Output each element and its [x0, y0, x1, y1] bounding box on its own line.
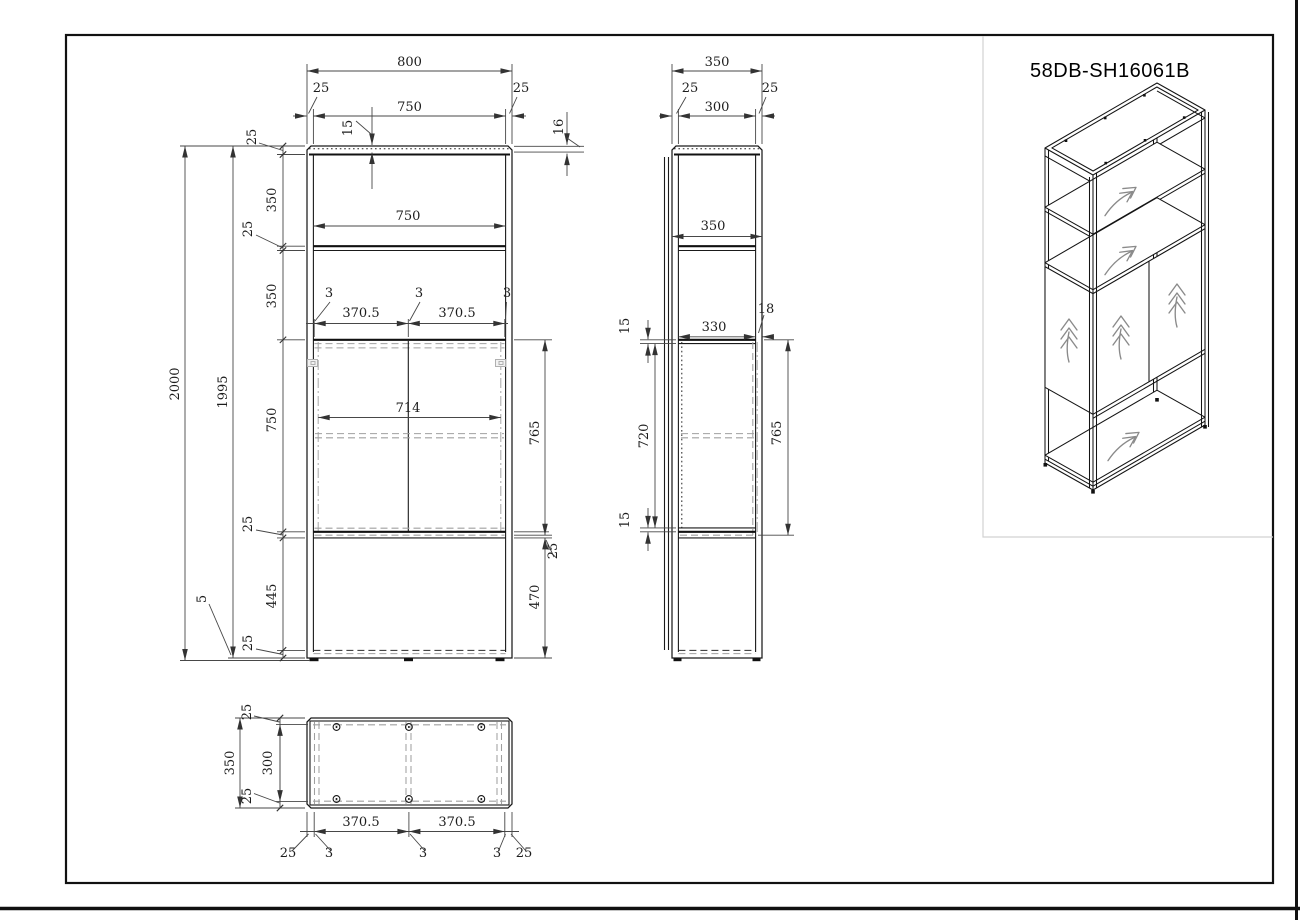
- dim-corner-inset-left: 25: [313, 81, 330, 96]
- dim-inner-width: 750: [397, 100, 422, 115]
- dim-overall-height: 2000: [168, 367, 183, 400]
- dim-door-width-left: 370.5: [342, 306, 379, 321]
- dim-corner-inset-right: 25: [513, 81, 530, 96]
- dim-top-inner-depth: 300: [261, 751, 276, 776]
- dim-corner-inset-front: 25: [682, 81, 699, 96]
- dim-chain-4: 750: [265, 408, 280, 433]
- dim-chain-0: 25: [245, 129, 260, 146]
- foot-center: [404, 658, 413, 661]
- front-view: 800 750 25 25 15 16 750 25 350 25 350 75…: [168, 55, 584, 661]
- dim-door-height: 765: [528, 421, 543, 446]
- dim-top-lip-side: 15: [618, 318, 633, 335]
- dim-chain-3: 350: [265, 284, 280, 309]
- dim-door-thickness: 18: [758, 302, 775, 317]
- dim-door-gap-left: 3: [325, 286, 333, 301]
- dim-corner-inset-back: 25: [762, 81, 779, 96]
- drawing-sheet: 800 750 25 25 15 16 750 25 350 25 350 75…: [0, 0, 1300, 920]
- foot-back: [674, 658, 682, 661]
- dim-top-overall-depth: 350: [223, 751, 238, 776]
- dim-top-inset-top: 25: [240, 704, 255, 721]
- dim-door-inner-depth: 330: [702, 320, 727, 335]
- dim-base-opening-height: 470: [528, 585, 543, 610]
- dim-chain-5: 25: [241, 516, 256, 533]
- dim-door-gap-right: 3: [503, 286, 511, 301]
- side-view: 350 300 25 25 350 15 720 15 330 18 765: [618, 55, 794, 661]
- dim-chain-7: 25: [241, 635, 256, 652]
- top-view: 25 300 25 350 370.5 370.5 25 3 3 3 25: [223, 704, 532, 861]
- dim-opening-height: 720: [637, 424, 652, 449]
- dim-chain-2: 25: [241, 221, 256, 238]
- dim-top-lip: 15: [341, 120, 356, 137]
- dim-top-door-width-left: 370.5: [342, 815, 379, 830]
- dim-top-gap-center: 3: [419, 846, 427, 861]
- dim-top-edge-inset-left: 25: [280, 846, 297, 861]
- cad-drawing: 800 750 25 25 15 16 750 25 350 25 350 75…: [0, 0, 1300, 920]
- dim-door-gap-center: 3: [415, 286, 423, 301]
- dim-chain-1: 350: [265, 188, 280, 213]
- dim-door-width-right: 370.5: [438, 306, 475, 321]
- dim-top-inset-bottom: 25: [240, 788, 255, 805]
- dim-door-opening-width: 714: [396, 401, 421, 416]
- dim-top-edge-inset-right: 25: [516, 846, 533, 861]
- dim-bottom-lip-side: 15: [618, 512, 633, 529]
- dim-foot-height: 5: [195, 595, 210, 603]
- dim-chain-6: 445: [265, 584, 280, 609]
- foot-right: [496, 658, 505, 661]
- dim-overall-width: 800: [397, 55, 422, 70]
- dim-shelf-depth: 350: [701, 219, 726, 234]
- dim-top-door-width-right: 370.5: [438, 815, 475, 830]
- dim-top-gap-right: 3: [493, 846, 501, 861]
- dim-top-panel-thickness: 16: [552, 119, 567, 136]
- foot-left: [310, 658, 319, 661]
- dim-top-gap-left: 3: [325, 846, 333, 861]
- isometric-view: 58DB-SH16061B: [1030, 60, 1209, 494]
- part-number-label: 58DB-SH16061B: [1030, 60, 1190, 82]
- dim-overall-depth: 350: [705, 55, 730, 70]
- dim-shelf-inner-width: 750: [396, 209, 421, 224]
- dim-door-height-side: 765: [770, 421, 785, 446]
- dim-inner-depth: 300: [705, 100, 730, 115]
- dim-shelf-thickness: 25: [546, 543, 561, 560]
- foot-front: [753, 658, 761, 661]
- dim-frame-height: 1995: [216, 375, 231, 408]
